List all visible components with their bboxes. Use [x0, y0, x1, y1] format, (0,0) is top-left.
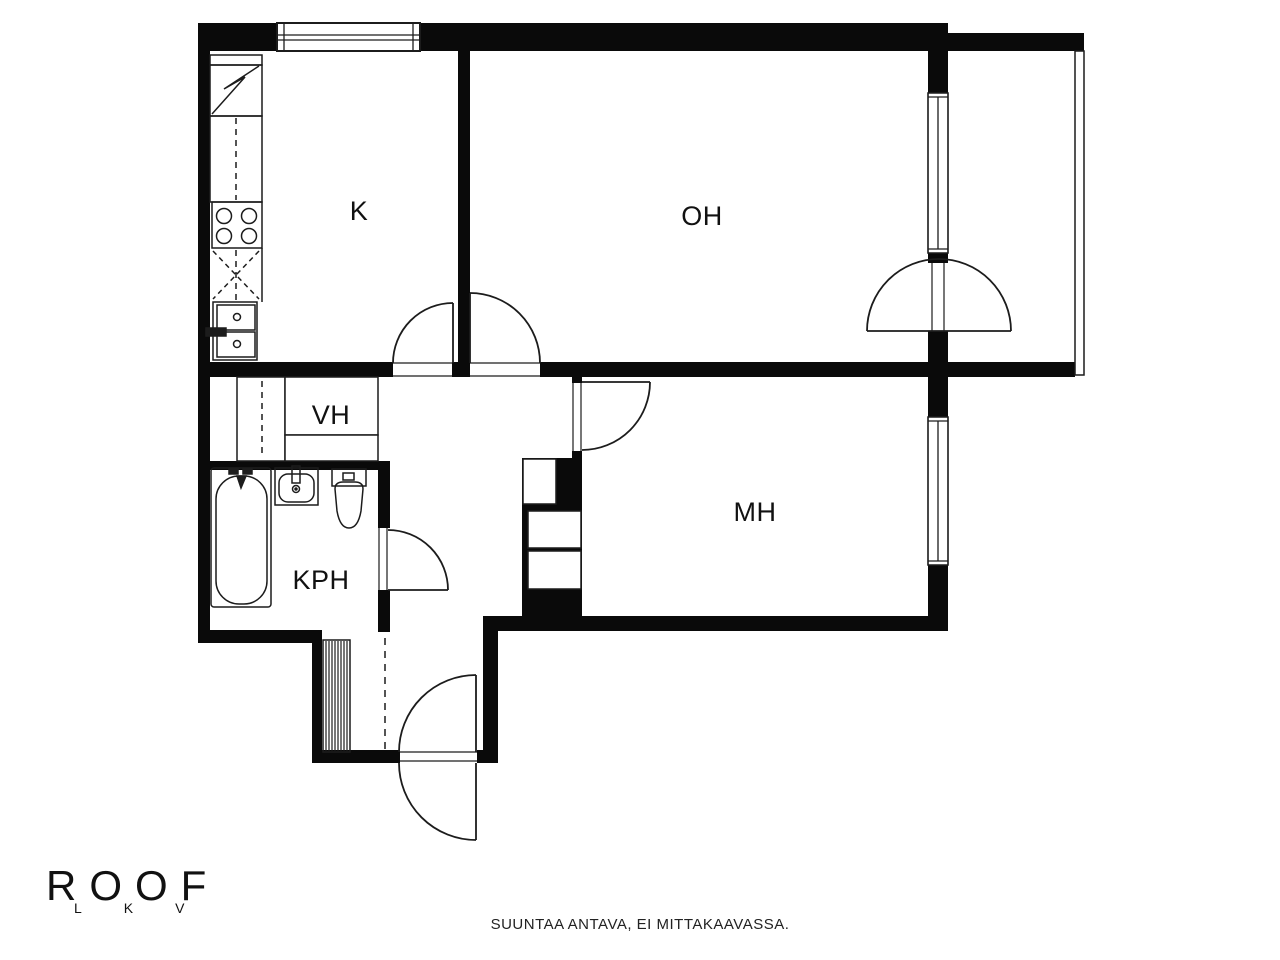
- wall-segment: [420, 23, 948, 51]
- stove-symbol: [212, 202, 262, 248]
- fridge-symbol: [210, 65, 262, 116]
- wall-segment: [312, 632, 322, 763]
- wall-segment: [928, 331, 948, 377]
- wall-segment: [540, 362, 928, 377]
- kitchen-fixtures: [206, 55, 262, 360]
- wall-segment: [928, 253, 948, 263]
- living-room-window: [928, 93, 948, 253]
- entry-details: [323, 638, 385, 752]
- wall-segment: [378, 590, 390, 632]
- room-label-bathroom: KPH: [292, 565, 349, 595]
- bathroom-door: [388, 530, 448, 590]
- wall-segment: [928, 51, 948, 93]
- room-label-wardrobe: VH: [312, 400, 351, 430]
- balcony-door-opening: [928, 263, 948, 331]
- closet-box: [528, 511, 581, 548]
- wall-segment: [378, 461, 390, 528]
- counter-top: [210, 55, 262, 65]
- kitchen-cabinet: [210, 116, 262, 202]
- room-label-bedroom: MH: [734, 497, 777, 527]
- wall-segment: [572, 451, 582, 458]
- washbasin-symbol: [275, 466, 318, 505]
- kitchen-door-opening: [393, 362, 452, 377]
- kitchen-door: [393, 303, 453, 363]
- wall-segment: [483, 616, 948, 631]
- wardrobe-cabinet: [285, 435, 378, 461]
- appliance-reservation: [213, 248, 262, 302]
- windows: [277, 23, 1084, 565]
- wardrobe-furniture: [237, 377, 378, 461]
- balcony-railing: [1075, 51, 1084, 375]
- wardrobe-cabinet: [237, 377, 285, 461]
- wall-segment: [928, 377, 948, 417]
- floor-plan: K OH VH KPH MH: [0, 0, 1280, 960]
- living-room-door: [470, 293, 540, 363]
- disclaimer-text: SUUNTAA ANTAVA, EI MITTAKAAVASSA.: [0, 916, 1280, 933]
- bedroom-door: [582, 382, 650, 450]
- wall-segment: [948, 33, 1084, 51]
- toilet-symbol: [332, 469, 366, 528]
- wall-segment: [458, 23, 470, 363]
- wall-segment: [198, 630, 322, 643]
- stairs-hatch: [323, 640, 350, 752]
- wall-segment: [948, 362, 1075, 377]
- room-label-living-room: OH: [681, 201, 723, 231]
- roof-logo-subtext: LKV: [74, 901, 226, 915]
- wall-segment: [572, 377, 582, 383]
- bedroom-window: [928, 417, 948, 565]
- wall-segment: [483, 616, 498, 763]
- wall-segment: [198, 362, 393, 377]
- room-label-kitchen: K: [350, 196, 369, 226]
- closet-box: [528, 551, 581, 589]
- bathtub-symbol: [211, 468, 271, 607]
- closet-box: [523, 459, 556, 504]
- living-room-door-opening: [470, 362, 540, 377]
- wall-segment: [452, 362, 470, 377]
- kitchen-sink-symbol: [206, 302, 257, 360]
- kitchen-window: [277, 23, 420, 51]
